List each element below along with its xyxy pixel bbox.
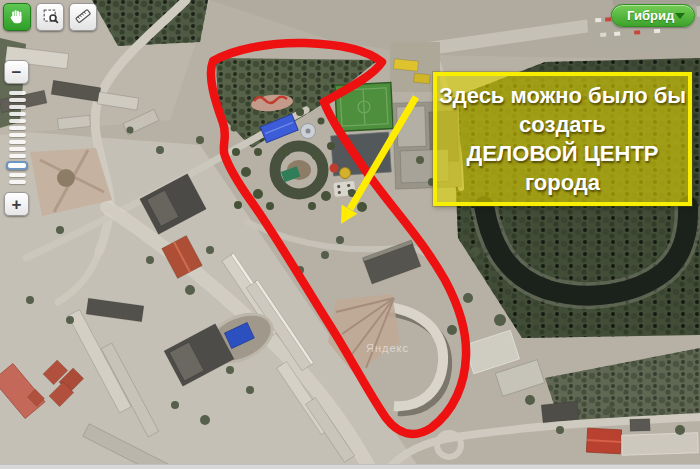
satellite-map-canvas[interactable]: Яндекс: [0, 0, 700, 469]
zoom-tick: [9, 154, 26, 158]
chevron-down-icon: [675, 13, 685, 19]
zoom-tick: [9, 98, 26, 102]
yandex-watermark: Яндекс: [366, 342, 409, 354]
callout-line: ДЕЛОВОЙ ЦЕНТР: [466, 139, 658, 168]
zoom-tick: [9, 91, 26, 95]
zoom-out-button[interactable]: −: [4, 60, 29, 84]
magnifier-box-icon: [41, 7, 59, 28]
zoom-tick: [9, 140, 26, 144]
annotation-callout: Здесь можно было бы создать ДЕЛОВОЙ ЦЕНТ…: [433, 72, 692, 206]
zoom-tick: [9, 112, 26, 116]
zoom-tick: [9, 147, 26, 151]
zoom-tick: [9, 173, 26, 177]
layer-switch-button[interactable]: Гибрид: [611, 4, 695, 27]
zoom-tick: [9, 133, 26, 137]
zoom-box-tool-button[interactable]: [36, 3, 64, 31]
layer-switch-label: Гибрид: [627, 8, 674, 23]
map-toolbar: [3, 3, 97, 31]
zoom-slider-handle[interactable]: [6, 161, 28, 170]
zoom-tick: [9, 105, 26, 109]
hand-icon: [8, 7, 26, 28]
pan-tool-button[interactable]: [3, 3, 31, 31]
zoom-tick: [9, 119, 26, 123]
callout-line: Здесь можно было бы: [439, 81, 686, 110]
map-edge-strip: [0, 464, 700, 469]
ruler-tool-button[interactable]: [69, 3, 97, 31]
zoom-tick: [9, 126, 26, 130]
zoom-in-button[interactable]: +: [4, 192, 29, 216]
map-viewport: Яндекс Здесь можно было бы создать ДЕЛОВ…: [0, 0, 700, 469]
zoom-control: − +: [4, 60, 30, 216]
callout-line: города: [525, 168, 600, 197]
callout-line: создать: [519, 110, 606, 139]
zoom-tick: [9, 180, 26, 184]
ruler-icon: [74, 7, 92, 28]
zoom-slider-track[interactable]: [4, 84, 30, 188]
